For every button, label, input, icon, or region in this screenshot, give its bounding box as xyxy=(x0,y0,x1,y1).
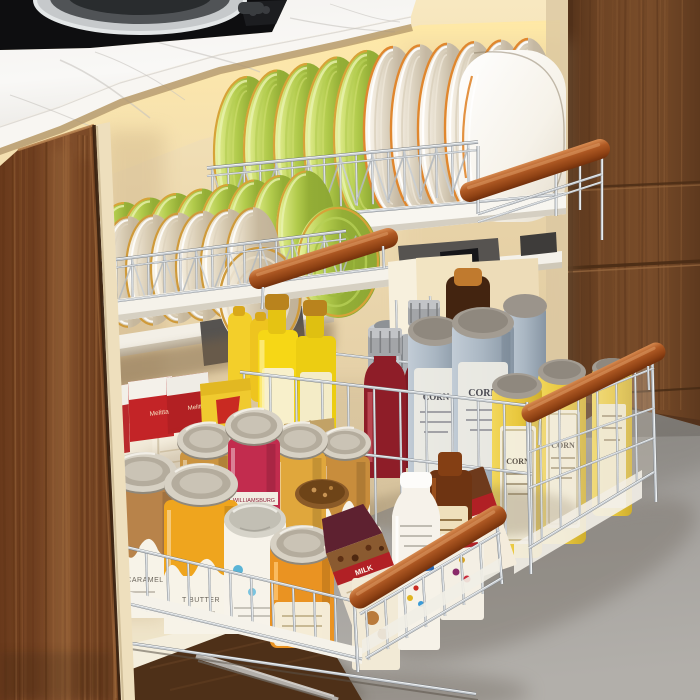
svg-text:T BUTTER: T BUTTER xyxy=(182,597,220,604)
svg-text:CORN: CORN xyxy=(506,457,530,466)
